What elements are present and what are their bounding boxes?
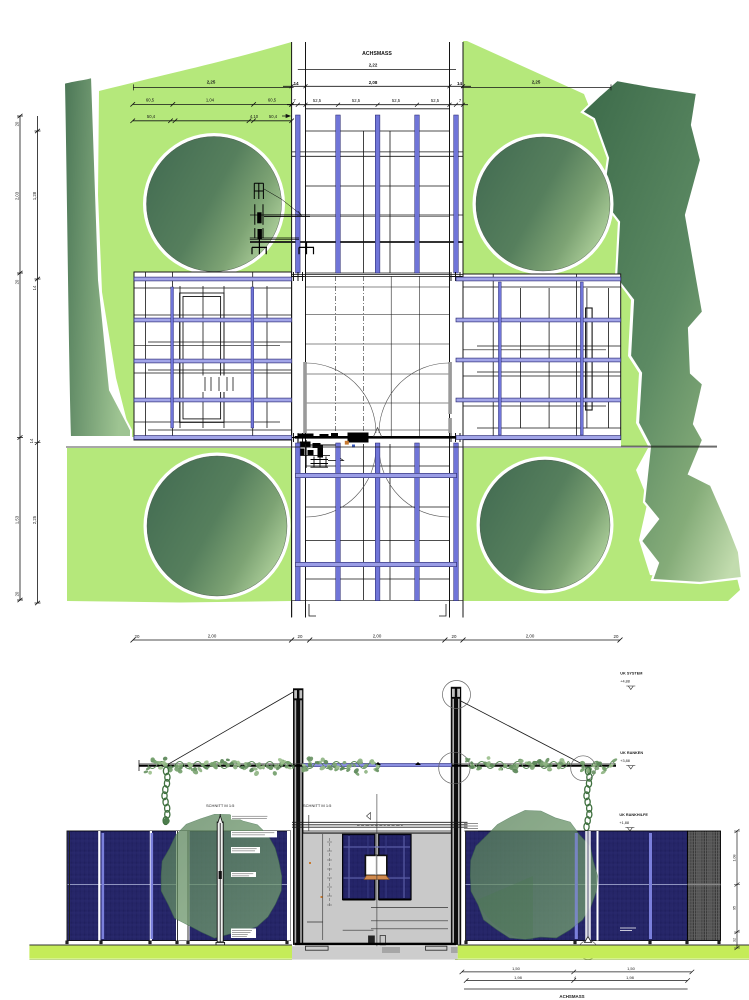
svg-text:UK RANKHILFE: UK RANKHILFE [619,813,648,817]
svg-text:52,5: 52,5 [392,98,401,103]
svg-text:SCHNITT M 1:5: SCHNITT M 1:5 [206,803,235,808]
svg-text:20: 20 [135,634,140,639]
svg-text:20: 20 [15,121,20,126]
svg-text:2,03: 2,03 [15,191,20,200]
svg-text:1,98: 1,98 [514,975,523,980]
svg-text:2,25: 2,25 [532,80,541,85]
svg-text:50,4: 50,4 [269,114,278,119]
svg-text:2,00: 2,00 [373,634,382,639]
svg-text:UK SYSTEM: UK SYSTEM [620,672,642,676]
svg-text:2,08: 2,08 [369,80,378,85]
svg-text:+1,88: +1,88 [619,821,629,825]
svg-text:60,5: 60,5 [268,98,277,103]
svg-text:52,5: 52,5 [313,98,322,103]
svg-text:4,10: 4,10 [250,114,259,119]
svg-text:ACHSMASS: ACHSMASS [559,994,584,999]
svg-text:1,50: 1,50 [512,966,521,971]
svg-text:60,5: 60,5 [146,98,155,103]
svg-text:32: 32 [733,938,737,942]
svg-text:14: 14 [29,438,34,443]
svg-text:14: 14 [457,81,463,86]
svg-text:1,04: 1,04 [206,98,215,103]
svg-text:1,08: 1,08 [733,855,737,862]
svg-text:52,5: 52,5 [431,98,440,103]
svg-text:4: 4 [574,975,577,980]
svg-text:1,98: 1,98 [626,975,635,980]
svg-text:7: 7 [459,98,462,103]
svg-text:2,22: 2,22 [369,63,378,68]
svg-text:ACHSMASS: ACHSMASS [362,51,392,57]
svg-text:UK RANKEN: UK RANKEN [620,751,643,755]
svg-text:95: 95 [733,906,737,910]
svg-text:20: 20 [452,634,457,639]
svg-text:SCHNITT M 1:5: SCHNITT M 1:5 [303,803,332,808]
svg-text:2,25: 2,25 [32,515,37,524]
svg-text:14: 14 [293,81,299,86]
svg-text:52,5: 52,5 [352,98,361,103]
svg-text:2,00: 2,00 [526,634,535,639]
svg-text:20: 20 [298,634,303,639]
svg-text:+3,88: +3,88 [620,759,630,763]
svg-text:20: 20 [15,591,20,596]
svg-text:2,00: 2,00 [208,634,217,639]
svg-text:2,25: 2,25 [207,80,216,85]
svg-text:50,4: 50,4 [147,114,156,119]
svg-text:14: 14 [32,285,37,290]
svg-text:+4,88: +4,88 [620,680,630,684]
svg-text:20: 20 [614,634,619,639]
svg-text:20: 20 [15,279,20,284]
svg-text:1,53: 1,53 [15,515,20,524]
svg-text:1,28: 1,28 [32,191,37,200]
svg-text:1,50: 1,50 [627,966,636,971]
